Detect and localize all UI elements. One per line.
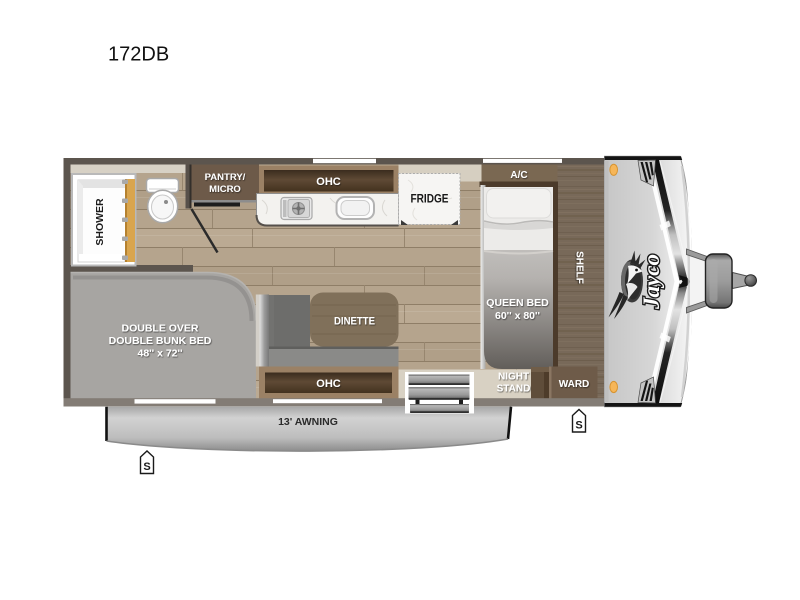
svg-text:MICRO: MICRO <box>209 184 241 195</box>
svg-text:FRIDGE: FRIDGE <box>411 192 449 206</box>
svg-text:DOUBLE OVER: DOUBLE OVER <box>121 323 198 335</box>
svg-text:60'' x 80'': 60'' x 80'' <box>495 310 540 322</box>
svg-text:OHC: OHC <box>316 378 341 390</box>
svg-text:DINETTE: DINETTE <box>334 316 375 328</box>
svg-text:OHC: OHC <box>316 176 341 188</box>
svg-text:QUEEN BED: QUEEN BED <box>486 297 549 309</box>
svg-text:NIGHT: NIGHT <box>498 372 529 383</box>
svg-text:SHOWER: SHOWER <box>94 198 106 246</box>
svg-text:Jayco: Jayco <box>639 254 664 310</box>
svg-text:A/C: A/C <box>510 170 527 181</box>
svg-text:DOUBLE BUNK BED: DOUBLE BUNK BED <box>109 335 212 347</box>
svg-text:SHELF: SHELF <box>574 251 585 284</box>
svg-text:48'' x 72'': 48'' x 72'' <box>137 348 182 360</box>
svg-text:WARD: WARD <box>559 379 590 390</box>
svg-text:S: S <box>575 420 582 432</box>
svg-text:172DB: 172DB <box>108 44 169 66</box>
svg-text:STAND: STAND <box>497 384 531 395</box>
svg-text:PANTRY/: PANTRY/ <box>205 172 246 183</box>
svg-text:S: S <box>143 461 150 473</box>
svg-text:13' AWNING: 13' AWNING <box>278 416 338 428</box>
